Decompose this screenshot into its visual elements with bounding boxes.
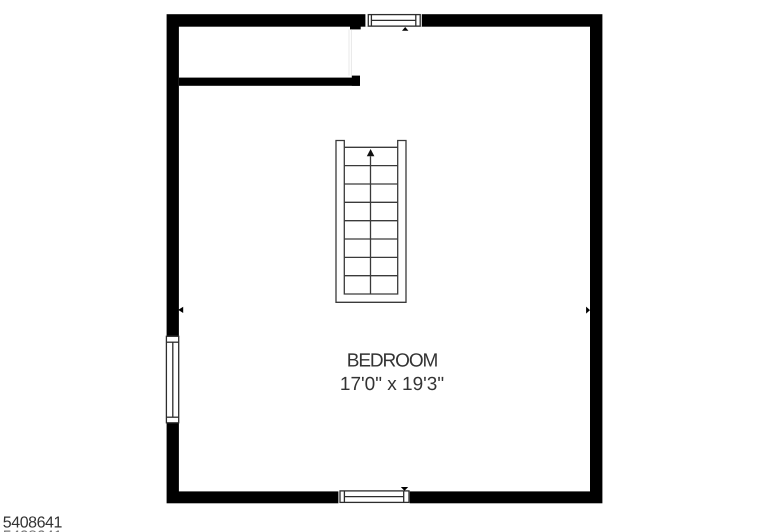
svg-text:5408641: 5408641 [3, 529, 63, 532]
svg-text:BEDROOM: BEDROOM [347, 350, 438, 371]
svg-text:17'0" x 19'3": 17'0" x 19'3" [340, 374, 444, 395]
